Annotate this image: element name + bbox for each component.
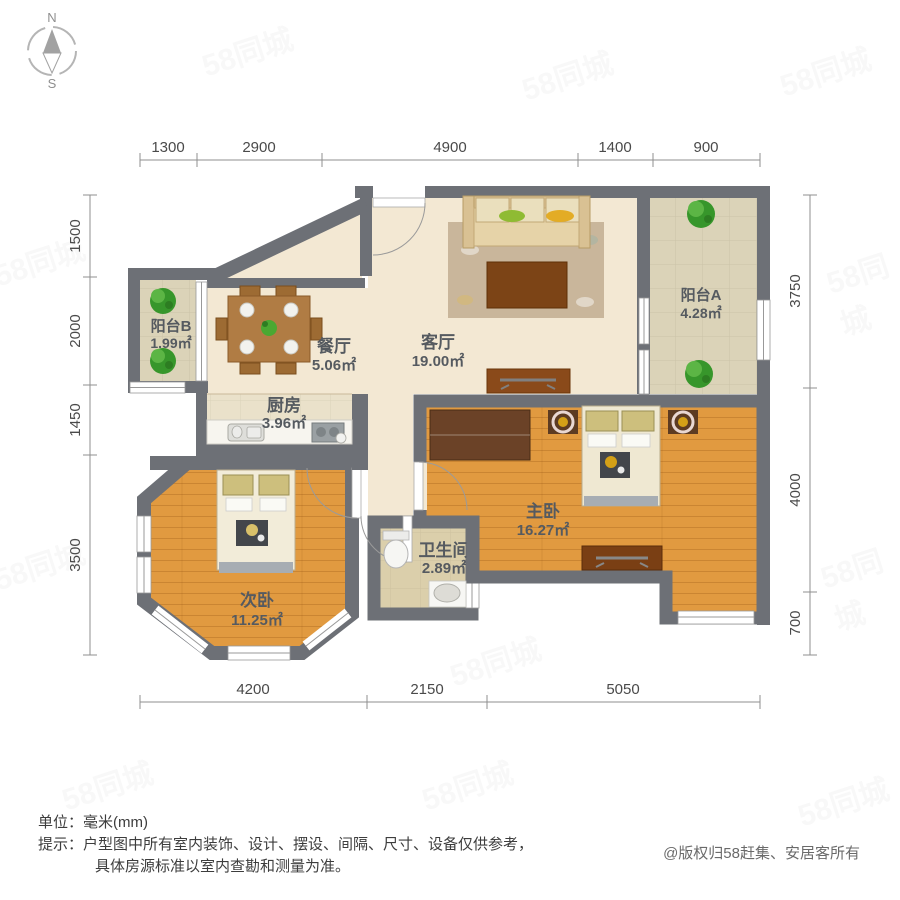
- tip-line2: 具体房源标准以室内查勘和测量为准。: [95, 858, 350, 875]
- kitchen-area: 3.96㎡: [262, 414, 306, 432]
- balcony-a-label: 阳台A: [681, 286, 722, 304]
- living-label: 客厅: [420, 332, 455, 352]
- plant-icon: [150, 348, 176, 374]
- plant-icon: [685, 360, 713, 388]
- toilet-icon: [383, 531, 409, 568]
- compass-icon: N S: [28, 10, 76, 91]
- floor-plan-canvas: N S 1300 2900 4900 1400 900 1500 2: [0, 0, 900, 810]
- bathroom-area: 2.89㎡: [422, 559, 466, 577]
- master-wardrobe-icon: [430, 410, 530, 460]
- master-tv-cabinet-icon: [582, 546, 662, 570]
- dim-right-3: 700: [787, 610, 804, 635]
- dim-left-2: 2000: [67, 314, 84, 347]
- dim-left-4: 3500: [67, 538, 84, 571]
- master-bedroom-area: 16.27㎡: [517, 521, 570, 539]
- dim-top-4: 1400: [598, 139, 631, 156]
- plant-icon: [150, 288, 176, 314]
- dim-bottom-3: 5050: [606, 681, 639, 698]
- living-area: 19.00㎡: [412, 352, 465, 370]
- tip-label: 提示：: [38, 836, 83, 853]
- coffee-table-icon: [487, 262, 567, 308]
- dimension-top: 1300 2900 4900 1400 900: [140, 139, 760, 167]
- dim-left-1: 1500: [67, 219, 84, 252]
- master-bed-icon: [582, 406, 660, 506]
- master-nightstand-right: [668, 410, 698, 434]
- balcony-b-label: 阳台B: [151, 317, 192, 335]
- copyright-note: @版权归58赶集、安居客所有: [663, 842, 860, 863]
- kitchen-bottom-wall: [196, 444, 362, 456]
- second-bedroom-bed-icon: [217, 470, 295, 573]
- balcony-a-area: 4.28㎡: [680, 305, 721, 321]
- plant-icon: [687, 200, 715, 228]
- compass-south: S: [48, 76, 57, 91]
- kitchen-label: 厨房: [267, 395, 301, 415]
- bathroom-sink-icon: [429, 581, 466, 607]
- dim-top-1: 1300: [151, 139, 184, 156]
- dining-label: 餐厅: [317, 336, 351, 356]
- dining-area: 5.06㎡: [312, 356, 356, 374]
- living-tv-cabinet-icon: [487, 369, 570, 393]
- bathroom-label: 卫生间: [419, 540, 470, 560]
- kitchen-sink-icon: [228, 424, 264, 441]
- corridor-floor: [368, 394, 413, 522]
- compass-north: N: [47, 10, 56, 25]
- master-bedroom-label: 主卧: [526, 501, 560, 521]
- dim-top-3: 4900: [433, 139, 466, 156]
- dining-table-icon: [216, 286, 322, 374]
- dim-top-2: 2900: [242, 139, 275, 156]
- dim-left-3: 1450: [67, 403, 84, 436]
- tip-line1: 户型图中所有室内装饰、设计、摆设、间隔、尺寸、设备仅供参考，: [83, 836, 533, 853]
- dimension-left: 1500 2000 1450 3500: [67, 195, 97, 655]
- dim-right-2: 4000: [787, 473, 804, 506]
- master-nightstand-left: [548, 410, 578, 434]
- unit-label: 单位：: [38, 814, 83, 831]
- dim-right-1: 3750: [787, 274, 804, 307]
- sofa-icon: [463, 196, 590, 248]
- dimension-right: 3750 4000 700: [787, 195, 817, 655]
- dimension-bottom: 4200 2150 5050: [140, 681, 760, 709]
- unit-value: 毫米(mm): [83, 814, 148, 831]
- dim-top-5: 900: [693, 139, 718, 156]
- dim-bottom-1: 4200: [236, 681, 269, 698]
- second-bedroom-label: 次卧: [240, 590, 274, 610]
- floor-plan-page: 58同城 58同城 58同城 58同城 58同城 58同城 58同城 58同城 …: [0, 0, 900, 900]
- second-bedroom-area: 11.25㎡: [231, 611, 283, 629]
- dim-bottom-2: 2150: [410, 681, 443, 698]
- room-second-bedroom: 次卧 11.25㎡: [137, 463, 361, 660]
- stove-icon: [312, 423, 346, 443]
- room-bathroom: 卫生间 2.89㎡: [361, 516, 479, 614]
- balcony-b-area: 1.99㎡: [150, 335, 191, 351]
